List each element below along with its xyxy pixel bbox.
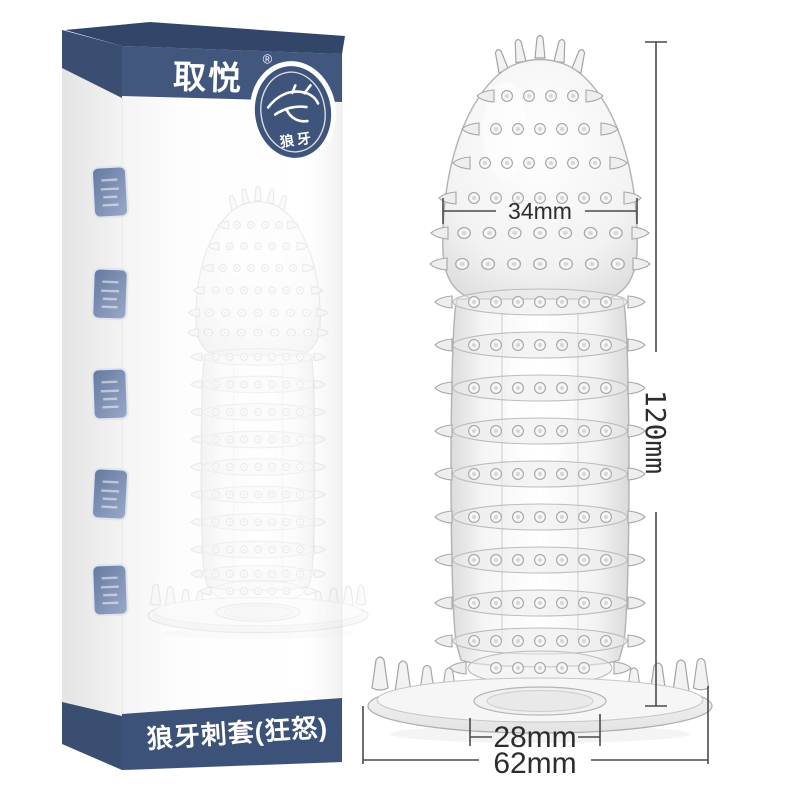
seal-stamp xyxy=(92,468,129,520)
brand-name: 取悦 xyxy=(173,58,244,97)
seal-stamp xyxy=(92,268,128,319)
dimension-total-length: 120mm xyxy=(639,42,672,706)
seal-stamp xyxy=(92,166,129,218)
seal-stamp xyxy=(92,564,128,615)
scene: 取悦 ® 狼牙 xyxy=(0,0,800,800)
registered-mark: ® xyxy=(262,51,272,66)
total-length-label: 120mm xyxy=(639,390,672,474)
product-box: 取悦 ® 狼牙 xyxy=(62,22,368,770)
head-width-label: 34mm xyxy=(508,198,572,224)
product-listing-image: 取悦 ® 狼牙 xyxy=(0,0,800,800)
base-width-label: 62mm xyxy=(493,747,576,780)
seal-stamp xyxy=(92,368,128,419)
